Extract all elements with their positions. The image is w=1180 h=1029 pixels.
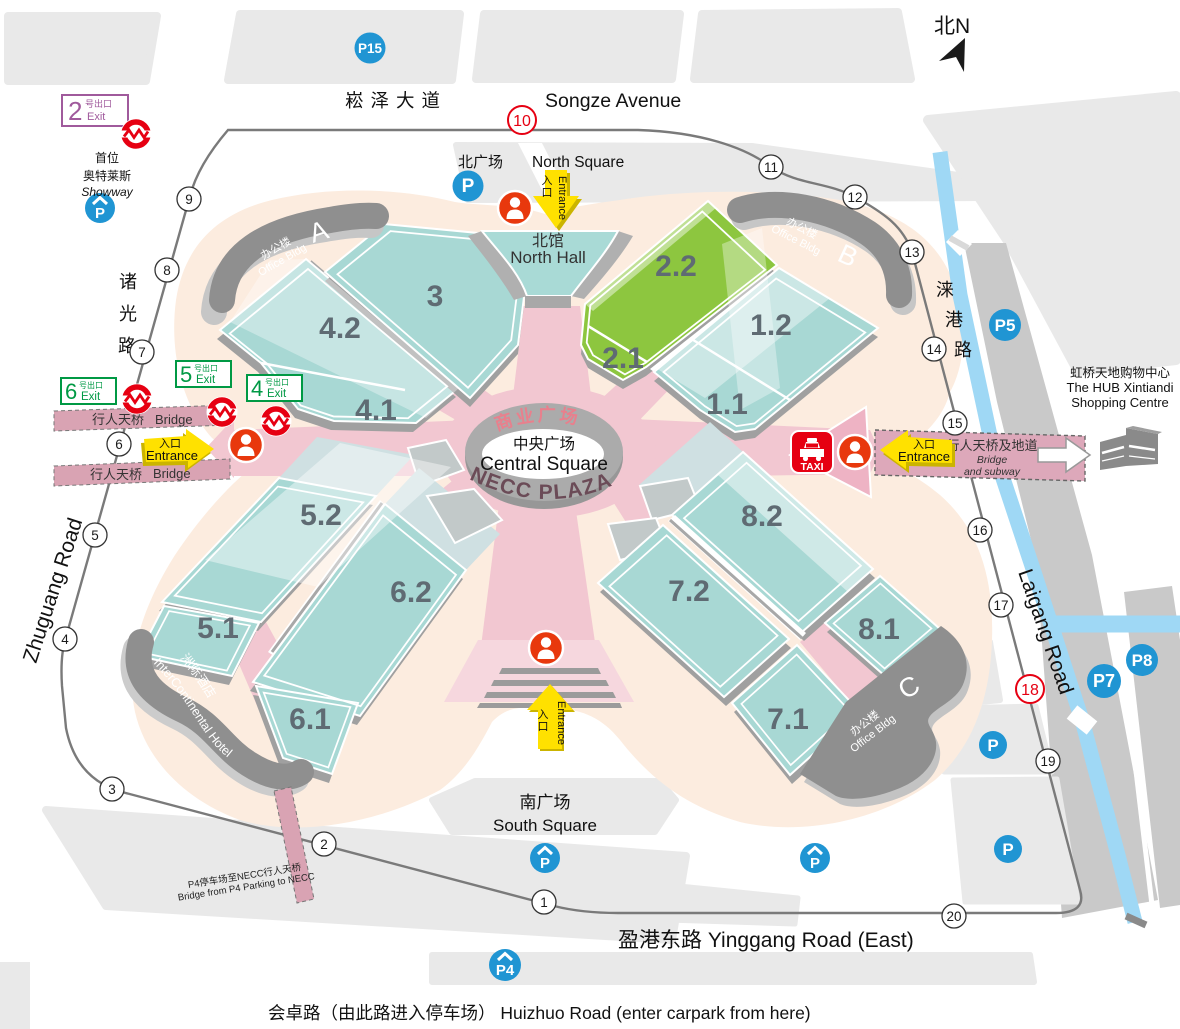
svg-text:1.1: 1.1: [706, 388, 748, 421]
svg-text:号出口: 号出口: [194, 363, 218, 373]
svg-text:South Square: South Square: [493, 816, 597, 835]
svg-text:13: 13: [904, 245, 919, 260]
svg-text:路: 路: [954, 340, 972, 360]
svg-text:Shopping Centre: Shopping Centre: [1071, 395, 1169, 410]
svg-text:4.1: 4.1: [355, 394, 397, 427]
svg-text:17: 17: [993, 598, 1008, 613]
svg-text:8: 8: [163, 263, 171, 278]
svg-text:虹桥天地购物中心: 虹桥天地购物中心: [1070, 365, 1171, 380]
svg-text:4: 4: [61, 632, 69, 647]
svg-text:and subway: and subway: [964, 466, 1021, 478]
svg-text:北广场: 北广场: [458, 154, 503, 171]
svg-text:12: 12: [847, 190, 862, 205]
svg-text:会卓路（由此路进入停车场） Huizhuo Road (e: 会卓路（由此路进入停车场） Huizhuo Road (enter carpar…: [268, 1003, 811, 1023]
svg-text:光: 光: [119, 304, 137, 324]
svg-text:P5: P5: [995, 316, 1016, 335]
svg-text:7.2: 7.2: [668, 575, 710, 608]
svg-text:6.1: 6.1: [289, 703, 331, 736]
svg-text:口: 口: [538, 721, 549, 733]
svg-text:P7: P7: [1093, 671, 1115, 691]
svg-text:2: 2: [320, 837, 328, 852]
svg-text:6: 6: [115, 437, 123, 452]
svg-text:North Hall: North Hall: [510, 248, 586, 267]
svg-text:盈港东路 Yinggang Road (East): 盈港东路 Yinggang Road (East): [618, 929, 914, 952]
svg-text:北N: 北N: [934, 15, 970, 38]
svg-text:Entrance: Entrance: [898, 449, 950, 464]
svg-text:20: 20: [946, 909, 961, 924]
svg-text:North Square: North Square: [532, 154, 624, 171]
svg-text:18: 18: [1021, 682, 1039, 699]
svg-text:P8: P8: [1132, 651, 1153, 670]
svg-text:4: 4: [251, 376, 263, 401]
svg-text:Bridge: Bridge: [153, 466, 191, 481]
svg-text:8.1: 8.1: [858, 613, 900, 646]
svg-text:Exit: Exit: [87, 111, 105, 123]
svg-text:7.1: 7.1: [767, 703, 809, 736]
svg-text:入: 入: [542, 175, 553, 187]
svg-text:TAXI: TAXI: [800, 461, 823, 473]
svg-text:崧泽大道: 崧泽大道: [345, 90, 447, 111]
svg-text:6: 6: [65, 379, 77, 404]
svg-text:14: 14: [926, 342, 942, 357]
svg-text:Central Square: Central Square: [480, 454, 608, 475]
svg-text:Entrance: Entrance: [555, 701, 567, 745]
svg-text:号出口: 号出口: [79, 380, 103, 390]
svg-text:5: 5: [180, 362, 192, 387]
svg-text:2: 2: [68, 96, 82, 126]
svg-text:9: 9: [185, 192, 193, 207]
svg-text:5.2: 5.2: [300, 499, 342, 532]
svg-text:The HUB Xintiandi: The HUB Xintiandi: [1067, 380, 1174, 395]
svg-text:Bridge: Bridge: [155, 412, 193, 427]
svg-text:Entrance: Entrance: [146, 448, 198, 463]
svg-text:号出口: 号出口: [85, 98, 112, 109]
svg-text:5: 5: [91, 528, 99, 543]
svg-text:P4: P4: [496, 962, 515, 979]
svg-text:1: 1: [540, 895, 548, 910]
svg-text:诸: 诸: [119, 272, 137, 292]
svg-text:8.2: 8.2: [741, 500, 783, 533]
svg-text:Bridge: Bridge: [977, 454, 1008, 466]
svg-text:1.2: 1.2: [750, 309, 792, 342]
svg-text:Songze Avenue: Songze Avenue: [545, 90, 681, 112]
svg-text:南广场: 南广场: [520, 793, 571, 812]
svg-text:港: 港: [945, 310, 963, 330]
svg-text:15: 15: [947, 416, 962, 431]
svg-text:Exit: Exit: [267, 388, 287, 400]
svg-text:行人天桥及地道: 行人天桥及地道: [946, 438, 1037, 453]
svg-text:11: 11: [764, 160, 778, 175]
svg-text:口: 口: [542, 187, 553, 199]
svg-text:16: 16: [972, 523, 987, 538]
svg-text:奥特莱斯: 奥特莱斯: [83, 168, 131, 183]
svg-text:19: 19: [1040, 754, 1055, 769]
svg-text:3: 3: [427, 280, 444, 313]
svg-text:行人天桥: 行人天桥: [90, 467, 142, 482]
svg-text:中央广场: 中央广场: [513, 435, 575, 453]
svg-text:6.2: 6.2: [390, 576, 432, 609]
svg-text:4.2: 4.2: [319, 312, 361, 345]
svg-text:号出口: 号出口: [265, 377, 289, 387]
svg-text:涞: 涞: [936, 280, 954, 300]
svg-text:2.1: 2.1: [602, 342, 644, 375]
svg-text:Exit: Exit: [81, 391, 101, 403]
svg-text:首位: 首位: [95, 150, 119, 165]
svg-text:5.1: 5.1: [197, 612, 239, 645]
svg-text:7: 7: [138, 345, 146, 360]
svg-text:3: 3: [108, 782, 116, 797]
svg-text:Showway: Showway: [81, 185, 133, 199]
svg-text:P15: P15: [358, 41, 383, 56]
svg-text:P: P: [462, 176, 475, 197]
svg-text:Exit: Exit: [196, 374, 216, 386]
svg-text:Entrance: Entrance: [556, 176, 568, 220]
svg-text:10: 10: [513, 113, 531, 130]
svg-text:入: 入: [538, 709, 549, 721]
svg-text:2.2: 2.2: [655, 250, 697, 283]
